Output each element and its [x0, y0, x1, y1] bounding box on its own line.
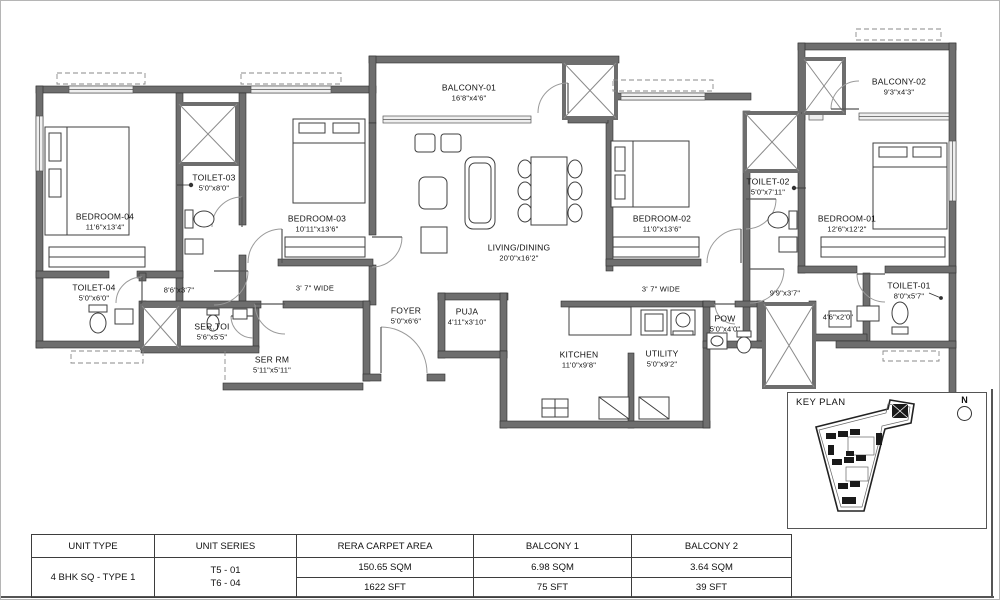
bed-icon: [293, 119, 365, 203]
window-grid-icon: [542, 399, 568, 417]
header-unit-type: UNIT TYPE: [32, 535, 155, 558]
table-row: 4 BHK SQ - TYPE 1 T5 - 01 T6 - 04 150.65…: [32, 558, 792, 578]
sink-icon: [641, 310, 667, 335]
unit-series-value: T5 - 01 T6 - 04: [155, 558, 297, 598]
header-balcony-1: BALCONY 1: [474, 535, 632, 558]
rera-sqm-value: 150.65 SQM: [297, 558, 474, 578]
unit-series-line-2: T6 - 04: [155, 578, 296, 591]
balcony1-sft-value: 75 SFT: [474, 578, 632, 598]
rera-sft-value: 1622 SFT: [297, 578, 474, 598]
wardrobe-icon: [49, 237, 945, 267]
key-plan-panel: KEY PLAN N: [787, 392, 987, 529]
north-compass-icon: [957, 406, 972, 421]
header-balcony-2: BALCONY 2: [632, 535, 792, 558]
bed-icon: [873, 143, 947, 229]
north-indicator: N: [957, 395, 972, 421]
balcony1-sqm-value: 6.98 SQM: [474, 558, 632, 578]
balcony2-sft-value: 39 SFT: [632, 578, 792, 598]
stove-icon: [671, 310, 695, 335]
north-label: N: [961, 395, 968, 405]
unit-spec-table: UNIT TYPE UNIT SERIES RERA CARPET AREA B…: [31, 534, 792, 598]
floor-plan-sheet: BEDROOM-04 11'6"x13'4" TOILET-03 5'0"x8'…: [0, 0, 1000, 600]
tv-unit-icon: [421, 227, 447, 253]
bed-icon: [45, 127, 129, 235]
dining-table-icon: [518, 157, 582, 225]
balcony2-sqm-value: 3.64 SQM: [632, 558, 792, 578]
key-plan-title: KEY PLAN: [796, 397, 846, 408]
kitchen-counter-icon: [569, 307, 631, 335]
unit-series-line-1: T5 - 01: [155, 565, 296, 578]
bed-icon: [611, 141, 689, 207]
sofa-icon: [465, 157, 495, 229]
table-header-row: UNIT TYPE UNIT SERIES RERA CARPET AREA B…: [32, 535, 792, 558]
armchair-icon: [415, 134, 461, 152]
header-unit-series: UNIT SERIES: [155, 535, 297, 558]
unit-type-value: 4 BHK SQ - TYPE 1: [32, 558, 155, 598]
coffee-table-icon: [419, 177, 447, 209]
header-rera-carpet-area: RERA CARPET AREA: [297, 535, 474, 558]
